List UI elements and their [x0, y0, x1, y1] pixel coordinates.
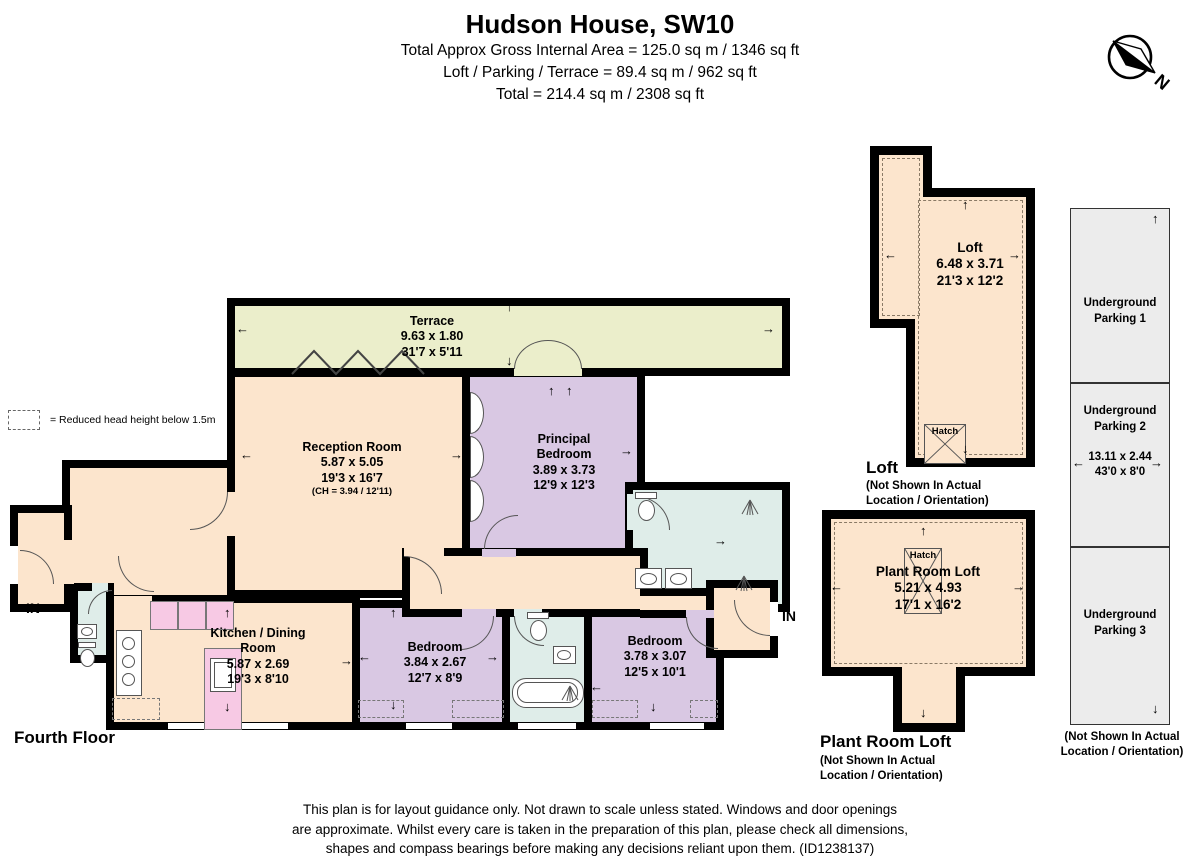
dim-arrow-icon: ↑ — [920, 524, 927, 537]
ensuite-door-opening — [627, 494, 635, 530]
loft-heading: Loft — [866, 458, 898, 478]
area-line-3: Total = 214.4 sq m / 2308 sq ft — [0, 84, 1200, 106]
room-dims-ft: 17'1 x 16'2 — [858, 597, 998, 613]
dim-arrow-icon: ↑ — [962, 198, 969, 211]
terrace-door-opening — [514, 368, 582, 376]
room-name: Bedroom — [605, 634, 705, 649]
parking-space-2-label: Underground Parking 2 — [1075, 404, 1165, 435]
entry-hall-opening — [62, 540, 74, 584]
loft-reduced-height-outline — [918, 200, 1023, 455]
parking-divider — [1070, 382, 1170, 384]
plant-room-floor — [902, 664, 956, 723]
dim-arrow-icon: ↓ — [506, 354, 513, 367]
page-title: Hudson House, SW10 — [0, 10, 1200, 40]
dim-arrow-icon: ↓ — [650, 700, 657, 713]
dim-arrow-icon: ↑ — [224, 606, 231, 619]
room-dims-ft: 12'7 x 8'9 — [385, 671, 485, 686]
parking-note: (Not Shown In Actual Location / Orientat… — [1050, 730, 1194, 760]
room-ceiling-height: (CH = 3.94 / 12'11) — [287, 486, 417, 498]
bedroom-right-label: Bedroom 3.78 x 3.07 12'5 x 10'1 — [605, 634, 705, 680]
room-dims-ft: 19'3 x 16'7 — [287, 471, 417, 486]
disclaimer-line-3: shapes and compass bearings before makin… — [0, 839, 1200, 859]
shower-icon — [734, 574, 754, 594]
wardrobe-unit — [150, 601, 178, 630]
plan-header: Hudson House, SW10 Total Approx Gross In… — [0, 10, 1200, 106]
room-name: Reception Room — [287, 440, 417, 455]
reduced-head-height-symbol — [8, 410, 40, 430]
room-dims-m: 3.89 x 3.73 — [523, 463, 605, 478]
room-dims-m: 5.87 x 2.69 — [210, 657, 306, 672]
dim-arrow-icon: ← — [240, 448, 253, 461]
compass-n-label: N — [1151, 70, 1174, 94]
hatch-label: Hatch — [905, 550, 941, 561]
room-name: Principal Bedroom — [523, 432, 605, 463]
wardrobe-dashed — [452, 700, 504, 718]
room-dims-ft: 19'3 x 8'10 — [210, 672, 306, 687]
principal-bedroom-label: Principal Bedroom 3.89 x 3.73 12'9 x 12'… — [523, 432, 605, 493]
dim-arrow-icon: ← — [1072, 456, 1085, 469]
dim-arrow-icon: → — [762, 322, 775, 335]
parking-divider — [1070, 546, 1170, 548]
dim-arrow-icon: → — [1008, 248, 1021, 261]
room-dims-m: 5.87 x 5.05 — [287, 455, 417, 470]
area-line-2: Loft / Parking / Terrace = 89.4 sq m / 9… — [0, 62, 1200, 84]
dim-arrow-icon: ← — [236, 322, 249, 335]
basin-icon — [635, 568, 662, 589]
disclaimer-line-2: are approximate. Whilst every care is ta… — [0, 820, 1200, 840]
hatch-label: Hatch — [925, 426, 965, 437]
dim-arrow-icon: ↓ — [1152, 702, 1159, 715]
vestibule-door-opening — [770, 602, 778, 636]
hall-kitchen-opening — [114, 596, 152, 612]
dim-arrow-icon: ↑ — [390, 606, 397, 619]
wardrobe-dashed — [592, 700, 638, 718]
hob-burner — [122, 655, 135, 668]
hob-burner — [122, 637, 135, 650]
wardrobe-unit — [178, 601, 206, 630]
basin-icon — [553, 646, 576, 664]
room-name: Terrace — [362, 314, 502, 329]
entry-in-label-right: IN — [782, 608, 796, 624]
dim-arrow-icon: → — [450, 448, 463, 461]
area-line-1: Total Approx Gross Internal Area = 125.0… — [0, 40, 1200, 62]
loft-hatch: Hatch — [924, 424, 966, 464]
shower-icon — [560, 684, 580, 704]
room-name: Bedroom — [385, 640, 485, 655]
room-name: Kitchen / Dining Room — [210, 626, 306, 657]
dim-arrow-icon: ↑ — [1152, 212, 1159, 225]
disclaimer: This plan is for layout guidance only. N… — [0, 800, 1200, 859]
toilet-tank — [78, 642, 96, 648]
dim-arrow-icon: ↑ — [506, 300, 513, 313]
parking-space-1-label: Underground Parking 1 — [1075, 296, 1165, 327]
toilet-icon — [530, 620, 547, 641]
compass-north-icon: N — [1100, 30, 1180, 102]
wardrobe-dashed — [690, 700, 718, 718]
dim-arrow-icon: ← — [590, 680, 603, 693]
dim-arrow-icon: ← — [884, 248, 897, 261]
room-dims-ft: 31'7 x 5'11 — [362, 345, 502, 360]
low-unit-dashed — [112, 698, 160, 720]
room-dims-ft: 21'3 x 12'2 — [910, 273, 1030, 289]
shower-icon — [740, 498, 760, 518]
dim-arrow-icon: ↑ — [548, 384, 555, 397]
hob-burner — [122, 673, 135, 686]
dim-arrow-icon: → — [486, 650, 499, 663]
dim-arrow-icon: → — [620, 444, 633, 457]
toilet-tank — [527, 612, 549, 619]
toilet-tank — [635, 492, 657, 499]
dim-arrow-icon: ↑ — [566, 384, 573, 397]
entry-door-opening — [10, 546, 18, 584]
dim-arrow-icon: ↓ — [224, 700, 231, 713]
entry-in-label-left: IN — [26, 600, 40, 616]
toilet-icon — [80, 649, 95, 667]
kitchen-label: Kitchen / Dining Room 5.87 x 2.69 19'3 x… — [210, 626, 306, 687]
basin-icon — [665, 568, 692, 589]
reception-label: Reception Room 5.87 x 5.05 19'3 x 16'7 (… — [287, 440, 417, 497]
dim-arrow-icon: ↓ — [962, 442, 969, 455]
dim-arrow-icon: → — [1150, 456, 1163, 469]
terrace-label: Terrace 9.63 x 1.80 31'7 x 5'11 — [362, 314, 502, 360]
principal-door-opening — [482, 549, 516, 557]
parking-space-3-label: Underground Parking 3 — [1075, 608, 1165, 639]
room-dims-m: 9.63 x 1.80 — [362, 329, 502, 344]
hall-reception-opening — [227, 492, 237, 536]
dim-arrow-icon: ← — [830, 580, 843, 593]
legend-text: = Reduced head height below 1.5m — [50, 414, 216, 426]
dim-arrow-icon: ← — [358, 650, 371, 663]
loft-reduced-height-outline — [882, 158, 920, 316]
hob-icon — [116, 630, 142, 696]
dim-arrow-icon: → — [1012, 580, 1025, 593]
wardrobe-dashed — [358, 700, 404, 718]
bedroom-left-label: Bedroom 3.84 x 2.67 12'7 x 8'9 — [385, 640, 485, 686]
room-dims-ft: 12'5 x 10'1 — [605, 665, 705, 680]
dim-arrow-icon: ↓ — [390, 698, 397, 711]
dim-arrow-icon: → — [714, 534, 727, 547]
plant-room-label: Plant Room Loft 5.21 x 4.93 17'1 x 16'2 — [858, 564, 998, 613]
loft-note: (Not Shown In Actual Location / Orientat… — [866, 479, 1001, 509]
dim-arrow-icon: ↓ — [920, 706, 927, 719]
room-dims-m: 3.78 x 3.07 — [605, 649, 705, 664]
room-dims-m: 3.84 x 2.67 — [385, 655, 485, 670]
toilet-icon — [638, 500, 655, 521]
plant-room-note: (Not Shown In Actual Location / Orientat… — [820, 754, 970, 784]
dim-arrow-icon: → — [340, 654, 353, 667]
window — [406, 722, 452, 730]
disclaimer-line-1: This plan is for layout guidance only. N… — [0, 800, 1200, 820]
room-dims-ft: 12'9 x 12'3 — [523, 478, 605, 493]
window — [518, 722, 576, 730]
window — [650, 722, 704, 730]
fourth-floor-heading: Fourth Floor — [14, 728, 115, 748]
basin-icon — [77, 624, 97, 639]
room-dims-m: 5.21 x 4.93 — [858, 580, 998, 596]
room-name: Plant Room Loft — [858, 564, 998, 580]
plant-room-heading: Plant Room Loft — [820, 732, 951, 752]
